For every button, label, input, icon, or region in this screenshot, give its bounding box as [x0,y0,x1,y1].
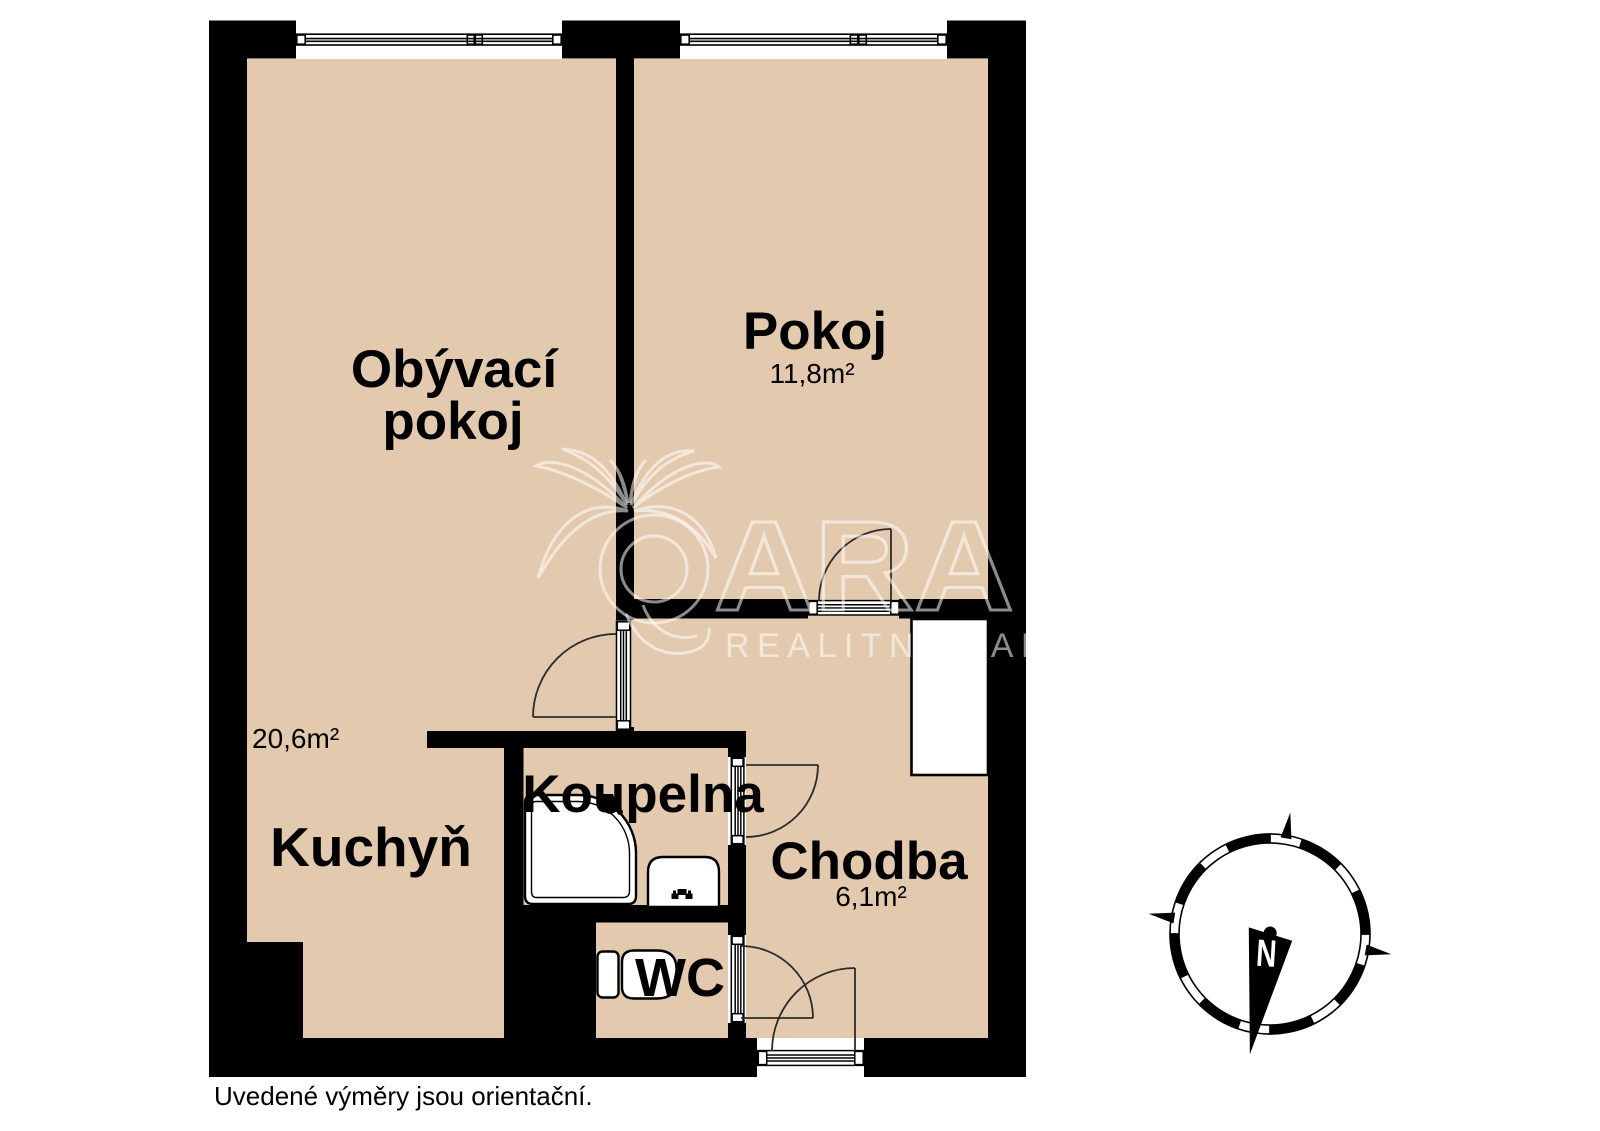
svg-text:20,6m²: 20,6m² [252,723,339,754]
svg-text:Uvedené výměry jsou orientační: Uvedené výměry jsou orientační. [214,1081,593,1111]
svg-text:11,8m²: 11,8m² [769,358,854,389]
svg-text:Pokoj: Pokoj [743,302,887,361]
svg-text:Koupelna: Koupelna [522,765,764,824]
svg-text:Obývací: Obývací [351,340,560,399]
svg-text:6,1m²: 6,1m² [835,881,907,912]
svg-text:pokoj: pokoj [382,392,523,451]
svg-text:WC: WC [635,948,725,1008]
svg-text:ARA: ARA [714,495,1014,638]
svg-text:REALITNÍ MAKLÉŘ: REALITNÍ MAKLÉŘ [725,627,1140,665]
svg-text:N: N [1255,933,1278,976]
svg-text:Kuchyň: Kuchyň [270,816,472,878]
